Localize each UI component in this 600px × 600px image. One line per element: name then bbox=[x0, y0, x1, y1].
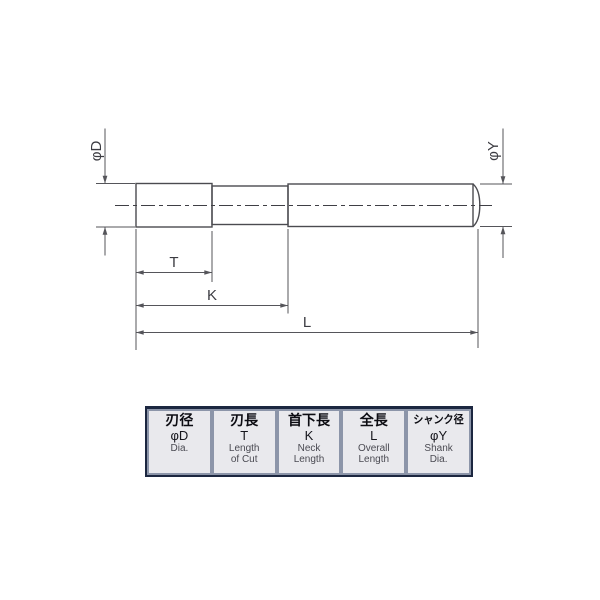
spec-cell-cut-dia: 刃径 φD Dia. bbox=[149, 411, 210, 473]
cell-en-line2: Length bbox=[294, 454, 325, 465]
lower-extension-lines bbox=[136, 229, 478, 350]
dimension-overall-length: L bbox=[136, 314, 478, 335]
cell-en-line2: of Cut bbox=[231, 454, 258, 465]
arrowhead-down-icon bbox=[501, 176, 506, 184]
spec-cell-overall-length: 全長 L Overall Length bbox=[343, 411, 404, 473]
dimension-neck-length: K bbox=[136, 287, 288, 308]
dimension-cut-dia: φD bbox=[88, 129, 135, 256]
cell-jp-label: 刃長 bbox=[230, 412, 258, 428]
cell-symbol: φD bbox=[170, 428, 188, 443]
cell-en-line2: Length bbox=[358, 454, 389, 465]
spec-legend-table: 刃径 φD Dia. 刃長 T Length of Cut 首下長 K Neck… bbox=[145, 406, 473, 477]
neck-length-label: K bbox=[207, 287, 217, 304]
cell-en-line1: Neck bbox=[298, 443, 321, 454]
shank-dia-label: φY bbox=[485, 141, 502, 161]
spec-cell-cut-length: 刃長 T Length of Cut bbox=[214, 411, 275, 473]
cell-symbol: L bbox=[370, 428, 377, 443]
arrowhead-left-icon bbox=[136, 330, 144, 335]
arrowhead-up-icon bbox=[501, 227, 506, 235]
cell-en-line1: Dia. bbox=[171, 443, 189, 454]
cut-length-label: T bbox=[169, 254, 178, 271]
spec-cell-neck-length: 首下長 K Neck Length bbox=[279, 411, 340, 473]
cell-en-line1: Shank bbox=[424, 443, 452, 454]
cell-en-line1: Overall bbox=[358, 443, 390, 454]
cell-jp-label: 全長 bbox=[360, 412, 388, 428]
arrowhead-left-icon bbox=[136, 270, 144, 275]
tool-drawing: φD φY T bbox=[0, 0, 600, 600]
arrowhead-right-icon bbox=[204, 270, 212, 275]
arrowhead-up-icon bbox=[103, 227, 108, 235]
cell-jp-label: シャンク径 bbox=[413, 412, 464, 428]
cell-en-line2: Dia. bbox=[430, 454, 448, 465]
cell-symbol: K bbox=[305, 428, 314, 443]
dimension-cut-length: T bbox=[136, 254, 212, 275]
technical-drawing-page: φD φY T bbox=[0, 0, 600, 600]
cell-symbol: φY bbox=[430, 428, 447, 443]
arrowhead-left-icon bbox=[136, 303, 144, 308]
arrowhead-down-icon bbox=[103, 176, 108, 184]
cell-symbol: T bbox=[240, 428, 248, 443]
cell-jp-label: 首下長 bbox=[288, 412, 330, 428]
cell-jp-label: 刃径 bbox=[165, 412, 193, 428]
overall-length-label: L bbox=[303, 314, 311, 331]
arrowhead-right-icon bbox=[280, 303, 288, 308]
dimension-shank-dia: φY bbox=[480, 129, 512, 259]
cell-en-line1: Length bbox=[229, 443, 260, 454]
arrowhead-right-icon bbox=[470, 330, 478, 335]
spec-cell-shank-dia: シャンク径 φY Shank Dia. bbox=[408, 411, 469, 473]
cut-dia-label: φD bbox=[88, 141, 105, 162]
